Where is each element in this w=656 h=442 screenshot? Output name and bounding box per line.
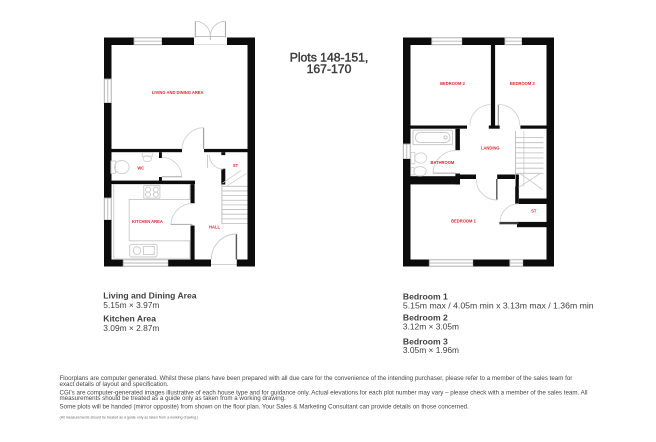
svg-text:BEDROOM 3: BEDROOM 3 <box>510 81 536 86</box>
svg-text:5.15m × 3.97m: 5.15m × 3.97m <box>103 300 159 310</box>
svg-text:BEDROOM 1: BEDROOM 1 <box>451 218 477 223</box>
svg-text:WC: WC <box>137 166 144 171</box>
svg-text:HALL: HALL <box>209 224 220 229</box>
svg-text:ST: ST <box>233 163 239 168</box>
svg-text:(All measurements should be tr: (All measurements should be treated as a… <box>60 416 199 420</box>
svg-text:BEDROOM 2: BEDROOM 2 <box>440 81 466 86</box>
svg-text:measurements should be treated: measurements should be treated as a guid… <box>60 395 287 402</box>
svg-text:3.05m × 1.96m: 3.05m × 1.96m <box>403 345 459 355</box>
svg-text:BATHROOM: BATHROOM <box>430 160 454 165</box>
svg-text:exact details of layout and sp: exact details of layout and specificatio… <box>60 381 169 388</box>
svg-text:167-170: 167-170 <box>307 62 352 76</box>
svg-text:KITCHEN AREA: KITCHEN AREA <box>132 219 163 224</box>
svg-text:LIVING AND DINING AREA: LIVING AND DINING AREA <box>152 90 204 95</box>
svg-text:5.15m max / 4.05m min x 3.13m: 5.15m max / 4.05m min x 3.13m max / 1.36… <box>403 301 594 311</box>
svg-text:3.09m × 2.87m: 3.09m × 2.87m <box>103 323 159 333</box>
svg-text:3.12m × 3.05m: 3.12m × 3.05m <box>403 321 459 331</box>
svg-text:Living and Dining Area: Living and Dining Area <box>103 291 196 301</box>
svg-text:ST: ST <box>531 208 537 213</box>
svg-text:Some plots will be handed (mir: Some plots will be handed (mirror opposi… <box>60 404 470 411</box>
svg-text:LANDING: LANDING <box>481 146 500 151</box>
